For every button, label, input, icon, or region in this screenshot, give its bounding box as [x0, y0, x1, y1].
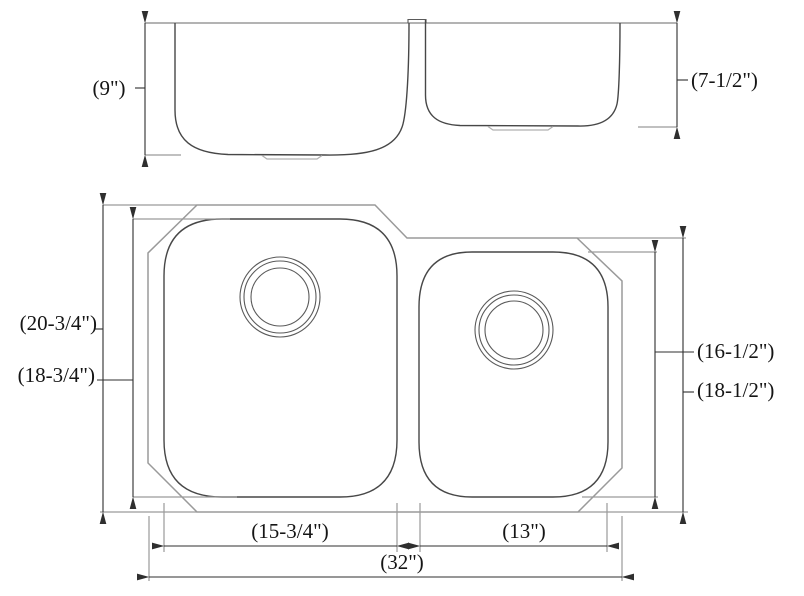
dim-label-overall-width: (32") — [380, 550, 424, 574]
sink-technical-drawing: (9") (7-1/2") — [0, 0, 804, 596]
left-drain-recess — [262, 156, 322, 160]
right-drain-recess — [488, 127, 553, 131]
dim-label-right-flange-height: (18-1/2") — [697, 378, 774, 402]
dim-label-overall-height: (20-3/4") — [20, 311, 97, 335]
dim-label-left-bowl-height: (18-3/4") — [18, 363, 95, 387]
flange-outline — [148, 205, 622, 512]
left-bowl-profile — [175, 23, 409, 155]
right-bowl-outline — [419, 252, 608, 497]
dim-label-right-bowl-depth: (7-1/2") — [691, 68, 758, 92]
plan-view: (20-3/4") (18-3/4") (16-1/2") (18-1/2") … — [18, 205, 775, 581]
drawing-svg: (9") (7-1/2") — [0, 0, 804, 596]
dim-label-left-bowl-depth: (9") — [92, 76, 125, 100]
extension-lines — [100, 205, 688, 581]
right-bowl-profile — [426, 20, 621, 126]
left-drain-circles — [240, 257, 320, 337]
dim-label-left-bowl-width: (15-3/4") — [251, 519, 328, 543]
front-elevation-view: (9") (7-1/2") — [92, 20, 757, 160]
right-drain-circles — [475, 291, 553, 369]
dim-label-right-bowl-height: (16-1/2") — [697, 339, 774, 363]
dim-label-right-bowl-width: (13") — [502, 519, 546, 543]
